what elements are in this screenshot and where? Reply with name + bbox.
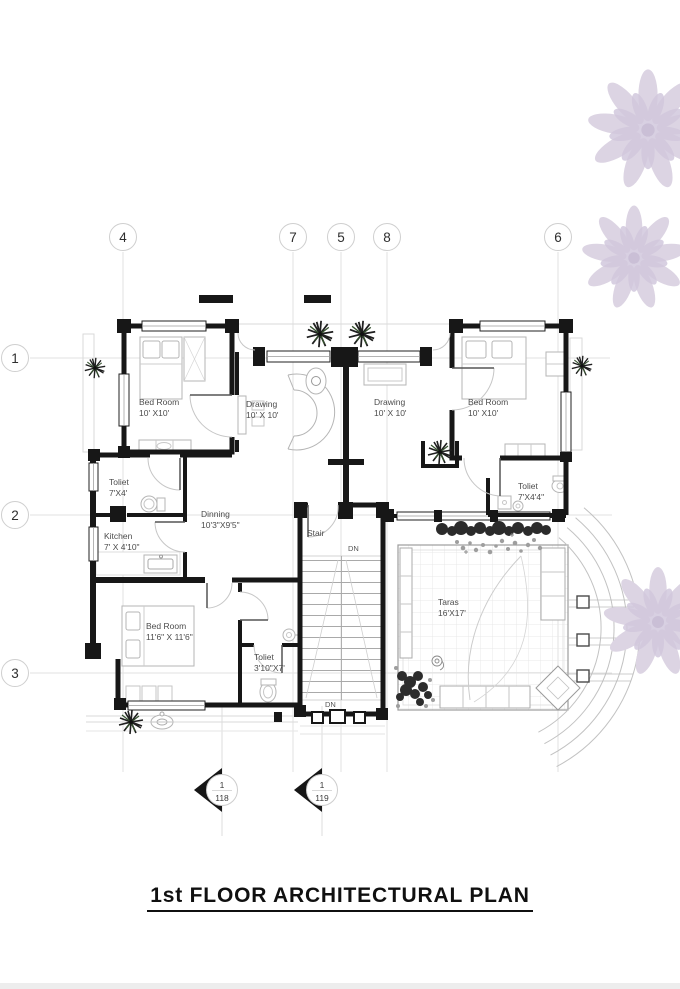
- room-name: Taras: [438, 597, 466, 608]
- tree-icon: [581, 206, 680, 311]
- section-bubble: 1 118: [206, 774, 238, 806]
- room-name: Toliet: [109, 477, 129, 488]
- trees-layer: [581, 69, 680, 676]
- room-dims: 10' X10': [468, 408, 508, 419]
- room-name: Bed Room: [146, 621, 193, 632]
- room-dims: 11'6" X 11'6": [146, 632, 193, 643]
- plant-icon: [85, 358, 105, 378]
- room-dims: 10' X 10': [374, 408, 407, 419]
- grid-marker-label: 4: [119, 230, 127, 245]
- room-dims: 7'X4': [109, 488, 129, 499]
- room-name: Bed Room: [468, 397, 508, 408]
- section-marker-118: 1 118: [194, 766, 240, 814]
- room-name: Drawing: [374, 397, 407, 408]
- grid-marker-row-3: 3: [1, 659, 29, 687]
- room-dims: 10' X10': [139, 408, 179, 419]
- room-label-toilet-right: Toliet7'X4'4": [518, 481, 544, 502]
- plant-icon: [572, 356, 592, 376]
- grid-marker-row-1: 1: [1, 344, 29, 372]
- grid-marker-label: 7: [289, 230, 297, 245]
- room-label-stair: Stair: [307, 528, 324, 539]
- room-label-toilet-left: Toliet7'X4': [109, 477, 129, 498]
- plant-icon: [307, 321, 333, 347]
- room-label-kitchen: Kitchen7' X 4'10": [104, 531, 140, 552]
- tree-icon: [587, 69, 680, 190]
- wc-top-left: [141, 496, 165, 512]
- stair-layer: [302, 556, 381, 700]
- section-sheet: 118: [215, 791, 229, 806]
- grid-marker-col-4: 4: [109, 223, 137, 251]
- section-sheet: 119: [315, 791, 329, 806]
- grid-marker-label: 2: [11, 508, 19, 523]
- floor-plan-sheet: 4 7 5 8 6 1 2 3 Bed Room10' X10' Drawing…: [0, 0, 680, 989]
- plan-drawing: [0, 0, 680, 989]
- section-number: 1: [312, 775, 332, 791]
- room-dims: 3'10"X7': [254, 663, 285, 674]
- sideboard: [364, 364, 406, 385]
- section-bubble: 1 119: [306, 774, 338, 806]
- room-label-bedroom-top-left: Bed Room10' X10': [139, 397, 179, 418]
- grid-marker-col-7: 7: [279, 223, 307, 251]
- room-name: Stair: [307, 528, 324, 539]
- room-name: Bed Room: [139, 397, 179, 408]
- section-number: 1: [212, 775, 232, 791]
- room-dims: 7' X 4'10": [104, 542, 140, 553]
- room-label-toilet-bottom: Toliet3'10"X7': [254, 652, 285, 673]
- grid-marker-row-2: 2: [1, 501, 29, 529]
- section-marker-119: 1 119: [294, 766, 340, 814]
- grid-marker-col-8: 8: [373, 223, 401, 251]
- dn-text: DN: [325, 701, 336, 709]
- room-label-taras: Taras16'X17': [438, 597, 466, 618]
- room-dims: 10'3"X9'5": [201, 520, 240, 531]
- grid-marker-label: 5: [337, 230, 345, 245]
- grid-marker-label: 6: [554, 230, 562, 245]
- ceiling-fan-symbol: [151, 712, 173, 729]
- room-name: Drawing: [246, 399, 279, 410]
- room-label-drawing-left: Drawing10' X 10': [246, 399, 279, 420]
- grid-marker-label: 8: [383, 230, 391, 245]
- grid-marker-col-6: 6: [544, 223, 572, 251]
- plant-icon: [349, 321, 375, 347]
- room-name: Dinning: [201, 509, 240, 520]
- tree-icon: [602, 567, 680, 677]
- room-name: Toliet: [518, 481, 544, 492]
- stair-dn-note-top: DN: [348, 545, 359, 553]
- stair-dn-note-bottom: DN: [325, 701, 336, 709]
- room-name: Toliet: [254, 652, 285, 663]
- room-label-dinning: Dinning10'3"X9'5": [201, 509, 240, 530]
- stair-balusters: [312, 710, 365, 723]
- plant-icon: [428, 440, 452, 464]
- grid-marker-col-5: 5: [327, 223, 355, 251]
- room-dims: 10' X 10': [246, 410, 279, 421]
- kitchen-sink: [96, 552, 180, 575]
- room-label-drawing-right: Drawing10' X 10': [374, 397, 407, 418]
- room-name: Kitchen: [104, 531, 140, 542]
- dn-text: DN: [348, 545, 359, 553]
- room-label-bedroom-top-right: Bed Room10' X10': [468, 397, 508, 418]
- title-block: 1st FLOOR ARCHITECTURAL PLAN: [0, 884, 680, 912]
- page-edge-strip: [0, 983, 680, 989]
- page-title: 1st FLOOR ARCHITECTURAL PLAN: [147, 884, 532, 912]
- room-label-bedroom-bottom: Bed Room11'6" X 11'6": [146, 621, 193, 642]
- grid-marker-label: 1: [11, 351, 19, 366]
- grid-marker-label: 3: [11, 666, 19, 681]
- terrace-layer: [398, 508, 640, 767]
- room-dims: 7'X4'4": [518, 492, 544, 503]
- room-dims: 16'X17': [438, 608, 466, 619]
